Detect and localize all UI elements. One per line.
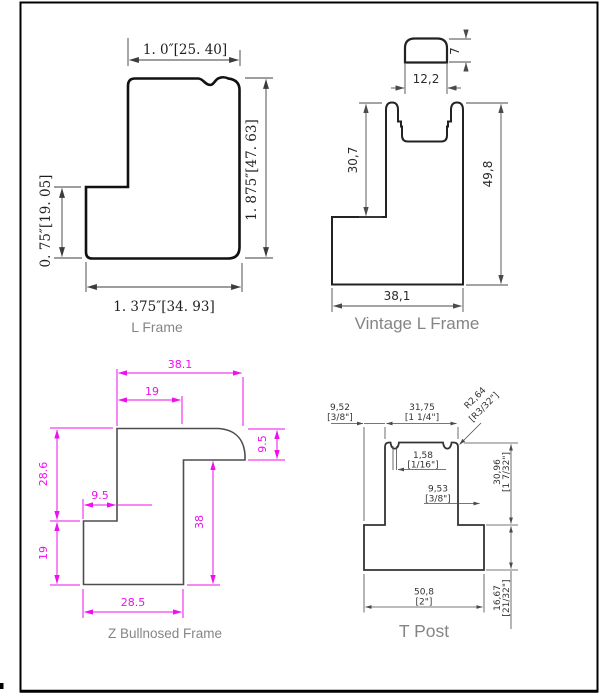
t-dim-left-offset-in: [3/8"] (327, 413, 353, 423)
t-dim-right-offset-mm: 9,53 (428, 485, 448, 495)
l-frame-drawing: 1. 0″[25. 40] 1. 875″[47. 63] 0. 75″[19.… (38, 38, 273, 335)
z-dim-bottom-width: 28.5 (121, 596, 146, 609)
t-dim-stem-height-in: [1 7/32"] (502, 452, 512, 492)
z-bullnosed-drawing: 38.1 19 28.6 19 9.5 9.5 38 28.5 Z Bullno… (37, 358, 285, 641)
vintage-dim-bottom-width: 38,1 (384, 289, 411, 303)
l-frame-profile (86, 77, 240, 258)
t-post-drawing: 9,52 [3/8"] 31,75 [1 1/4"] R2,64 [R3/32"… (327, 386, 518, 641)
t-dim-groove-in: [1/16"] (407, 461, 438, 471)
l-frame-dim-top-width: 1. 0″[25. 40] (143, 42, 227, 58)
z-dim-step-width: 9.5 (91, 489, 109, 502)
vintage-dim-cap-height: 7 (448, 47, 462, 55)
profiles-diagram: 1. 0″[25. 40] 1. 875″[47. 63] 0. 75″[19.… (0, 0, 614, 700)
vintage-l-frame-title: Vintage L Frame (355, 314, 480, 333)
z-dim-upper-height: 28.6 (37, 462, 50, 487)
t-dim-stem-width-in: [1 1/4"] (405, 413, 439, 423)
edge-mark (0, 683, 4, 689)
t-dim-base-height-in: [21/32"] (502, 579, 512, 616)
t-dim-base-width-mm: 50,8 (414, 588, 434, 598)
z-dim-bullnose-height: 9.5 (256, 435, 269, 453)
drawing-sheet: 1. 0″[25. 40] 1. 875″[47. 63] 0. 75″[19.… (0, 0, 614, 700)
t-dim-groove-mm: 1,58 (413, 451, 433, 461)
vintage-l-frame-drawing: 7 12,2 30,7 49,8 38,1 Vintage L Frame (332, 32, 508, 334)
t-dim-base-width-in: [2"] (416, 598, 433, 608)
vintage-dim-upper-height: 30,7 (346, 147, 360, 174)
vintage-cap-profile (405, 39, 447, 63)
l-frame-dim-right-height: 1. 875″[47. 63] (244, 119, 260, 220)
z-dim-web-height: 38 (193, 515, 206, 529)
t-dim-stem-width-mm: 31,75 (409, 403, 435, 413)
z-bullnosed-title: Z Bullnosed Frame (108, 626, 222, 641)
l-frame-dim-bottom-width: 1. 375″[34. 93] (113, 299, 214, 315)
z-dim-overall-width: 38.1 (168, 358, 193, 371)
vintage-dim-overall-height: 49,8 (481, 161, 495, 188)
z-bullnosed-profile (84, 429, 246, 585)
l-frame-dim-left-height: 0. 75″[19. 05] (38, 175, 54, 268)
t-dim-left-offset-mm: 9,52 (330, 403, 350, 413)
vintage-main-profile (332, 103, 463, 285)
z-dim-lower-height: 19 (37, 546, 50, 560)
z-dim-flange-width: 19 (145, 385, 159, 398)
vintage-dim-cap-width: 12,2 (413, 72, 440, 86)
l-frame-title: L Frame (131, 319, 183, 335)
t-post-title: T Post (399, 621, 449, 641)
t-dim-right-offset-in: [3/8"] (425, 495, 451, 505)
